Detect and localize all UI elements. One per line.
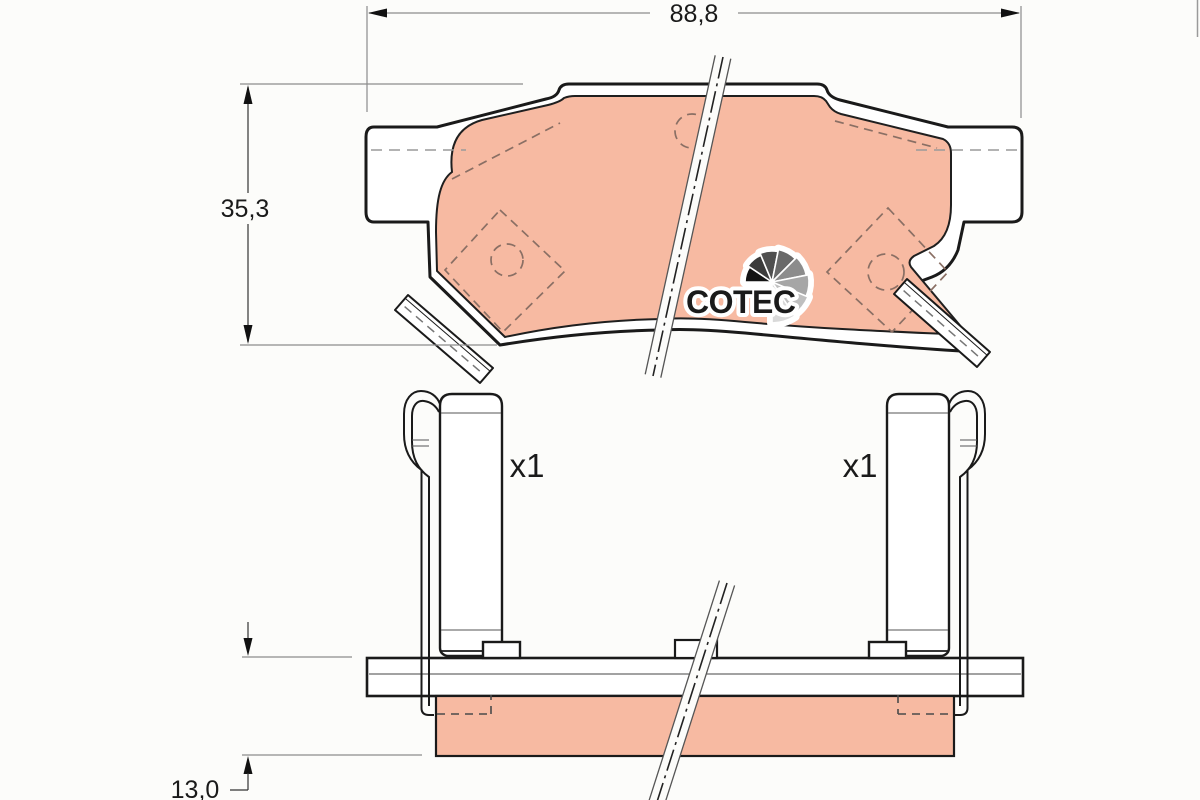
arrowhead-left [368, 9, 387, 18]
pad-side-view: x1 x1 [367, 391, 1023, 800]
dimension-thickness: 13,0 [171, 622, 422, 800]
clip-tab [869, 642, 906, 658]
arrowhead-up [244, 756, 253, 774]
brake-pad-drawing: COTEC 88,8 35,3 [0, 0, 1200, 800]
quantity-label-left: x1 [510, 447, 545, 484]
arrowhead-right [1001, 9, 1020, 18]
cotec-logo-text: COTEC [686, 284, 796, 320]
arrowhead-down [244, 325, 253, 344]
width-dimension-label: 88,8 [670, 0, 719, 28]
pad-top-view: COTEC [366, 55, 1022, 383]
height-dimension-label: 35,3 [221, 195, 270, 223]
arrowhead-up [244, 85, 253, 104]
clip-body [440, 394, 502, 656]
technical-drawing-page: COTEC 88,8 35,3 [0, 0, 1200, 800]
thickness-dimension-label: 13,0 [171, 776, 220, 800]
clip-tab [483, 642, 520, 658]
clip-body [887, 394, 949, 656]
quantity-label-right: x1 [843, 447, 878, 484]
arrowhead-down [244, 638, 253, 656]
